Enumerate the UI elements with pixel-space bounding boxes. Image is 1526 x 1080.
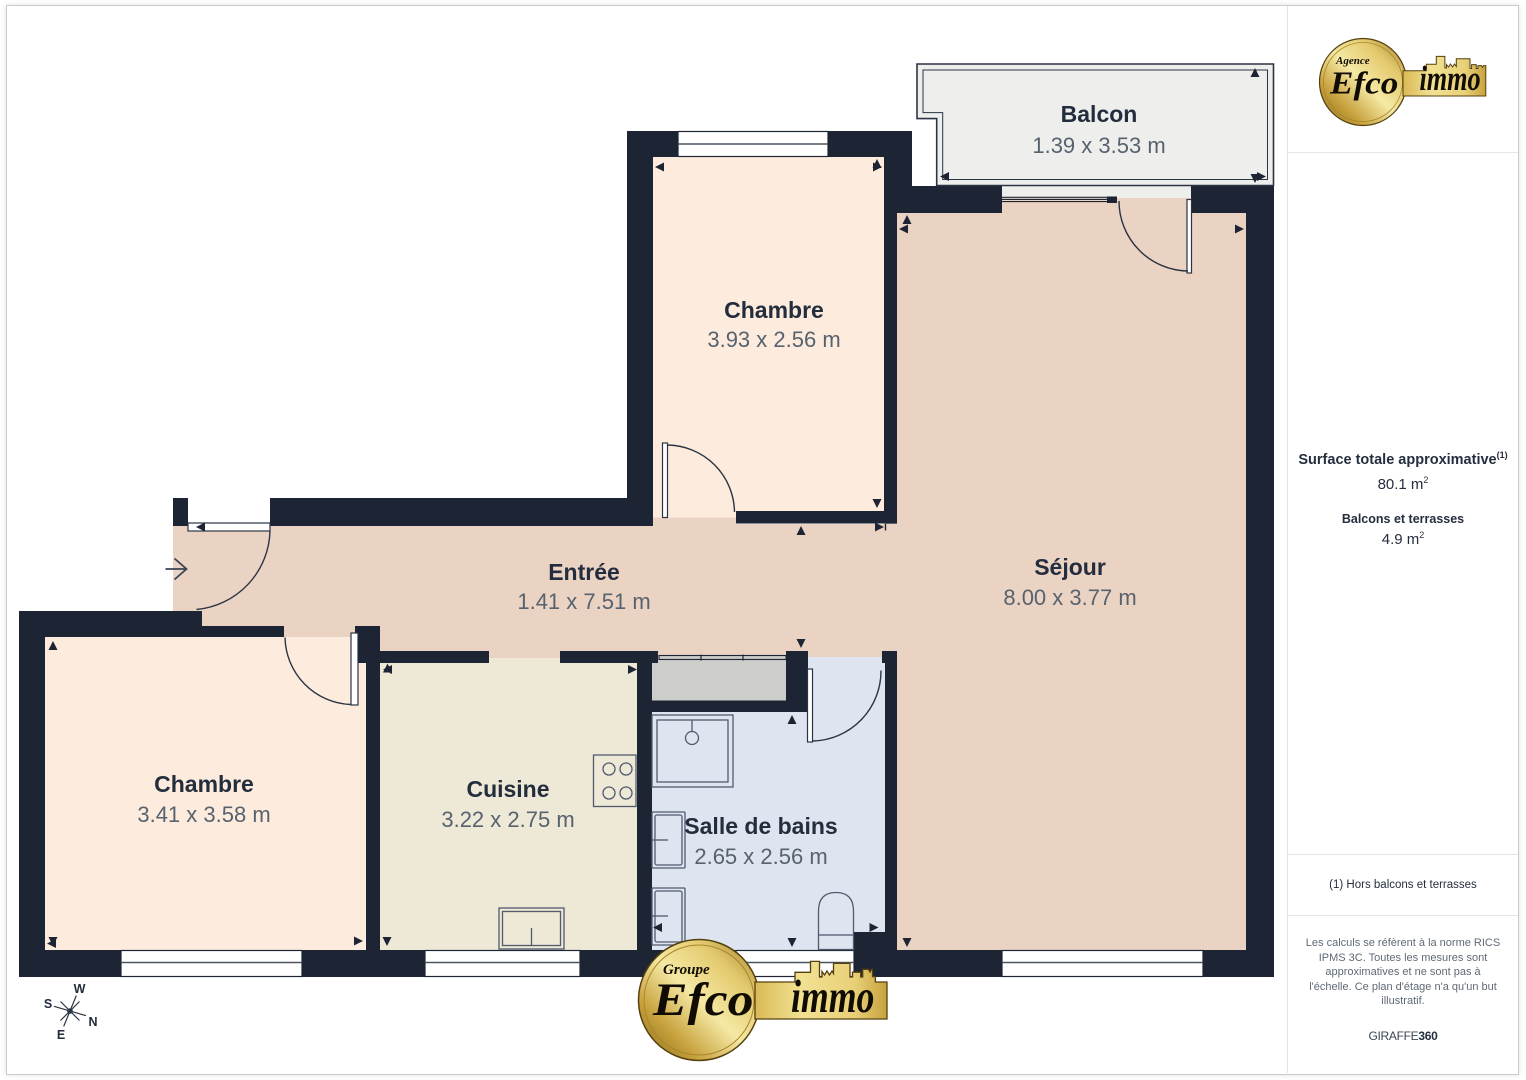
svg-text:N: N <box>88 1015 97 1029</box>
svg-text:2.65 x 2.56 m: 2.65 x 2.56 m <box>694 844 827 869</box>
svg-text:3.93 x 2.56 m: 3.93 x 2.56 m <box>707 327 840 352</box>
svg-text:Cuisine: Cuisine <box>466 776 549 802</box>
svg-text:8.00 x 3.77 m: 8.00 x 3.77 m <box>1003 585 1136 610</box>
svg-text:3.22 x 2.75 m: 3.22 x 2.75 m <box>441 807 574 832</box>
svg-text:3.41 x 3.58 m: 3.41 x 3.58 m <box>137 802 270 827</box>
svg-text:Efco: Efco <box>1329 66 1398 101</box>
svg-text:Chambre: Chambre <box>154 771 254 797</box>
svg-text:Efco: Efco <box>652 973 754 1025</box>
svg-text:1.41 x 7.51 m: 1.41 x 7.51 m <box>517 589 650 614</box>
svg-text:Salle de bains: Salle de bains <box>684 813 837 839</box>
svg-text:immo: immo <box>791 971 874 1023</box>
svg-text:Séjour: Séjour <box>1034 554 1106 580</box>
svg-text:Chambre: Chambre <box>724 297 824 323</box>
svg-text:E: E <box>57 1028 65 1042</box>
svg-text:1.39 x 3.53 m: 1.39 x 3.53 m <box>1032 133 1165 158</box>
svg-text:Balcon: Balcon <box>1061 101 1138 127</box>
svg-text:Entrée: Entrée <box>548 559 620 585</box>
svg-text:W: W <box>74 982 86 996</box>
svg-text:S: S <box>44 997 52 1011</box>
svg-text:immo: immo <box>1420 60 1481 98</box>
